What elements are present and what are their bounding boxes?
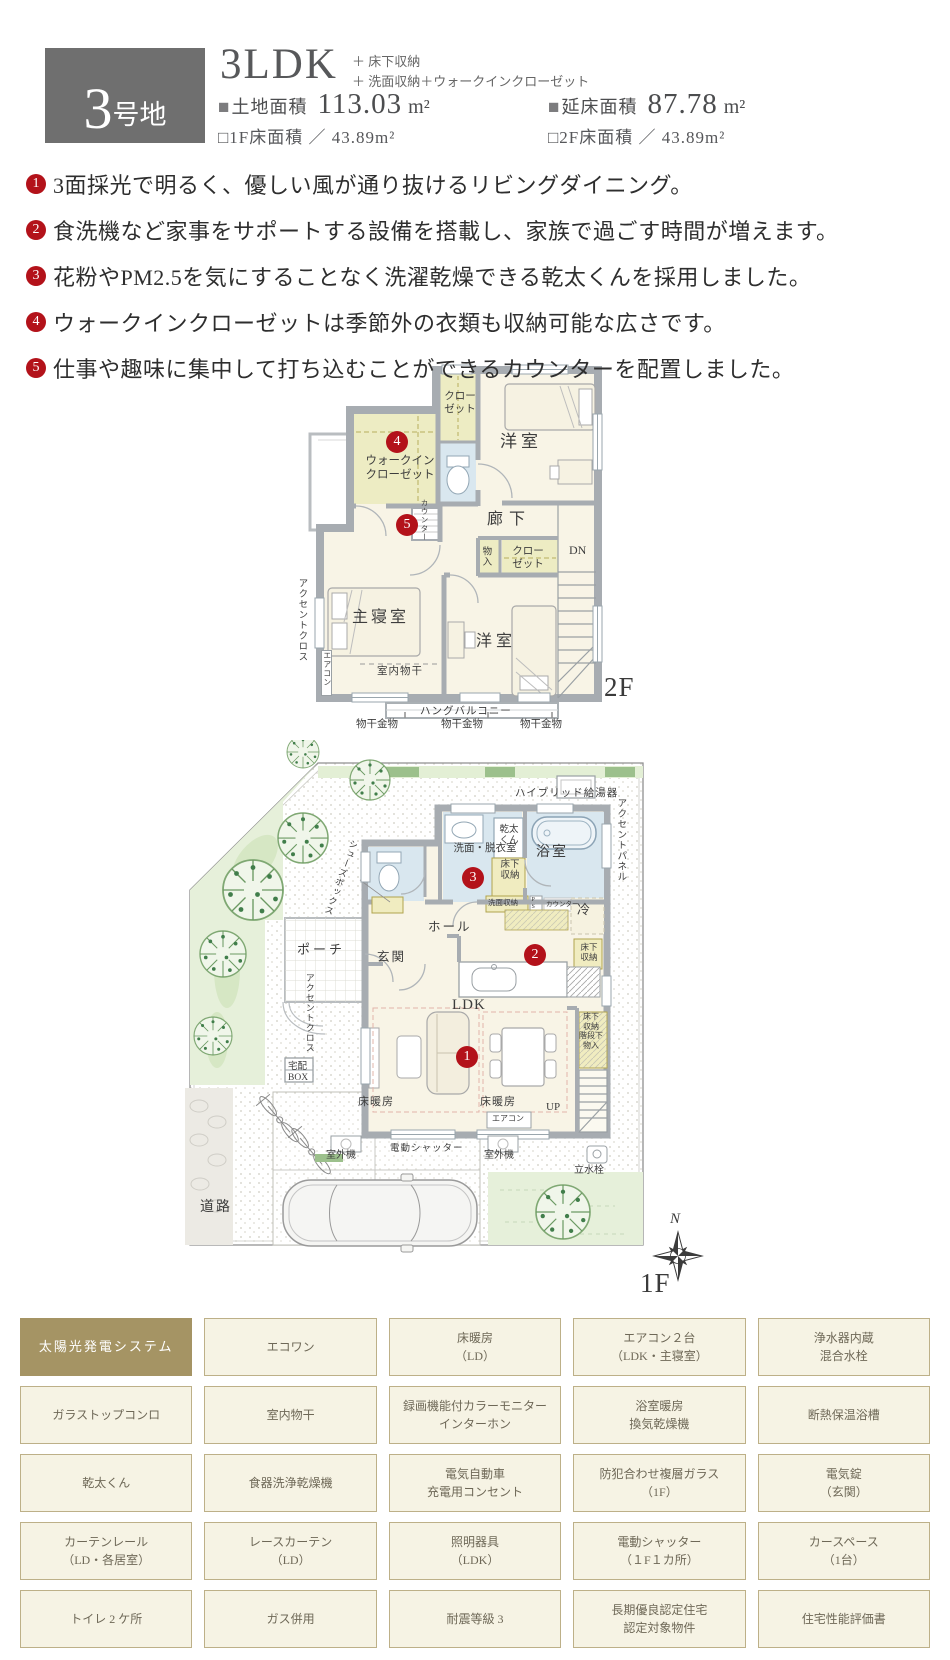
marker-4-wic: 4: [386, 431, 408, 453]
label-counter-2f: カウンター: [420, 499, 429, 545]
lot-suffix: 号地: [113, 101, 167, 135]
toilet-fixture-2f: [447, 456, 469, 494]
label-road: 道路: [200, 1200, 232, 1217]
room-label-hall: ホール: [428, 920, 472, 935]
faucet-unit: [587, 1146, 607, 1163]
marker-3-laundry: 3: [462, 867, 484, 889]
note-3-badge: 3: [26, 266, 46, 286]
land-area-value: 113.03: [317, 88, 402, 121]
note-5-text: 仕事や趣味に集中して打ち込むことができるカウンターを配置しました。: [53, 352, 794, 384]
floor-tag-2f: 2F: [604, 672, 635, 703]
label-fridge: 冷: [577, 902, 590, 918]
note-1: 13面採光で明るく、優しい風が通り抜けるリビングダイニング。: [26, 168, 839, 200]
lot-number: 3: [84, 83, 113, 135]
label-outdoor-unit-2: 室外機: [484, 1150, 514, 1162]
label-ps: PS: [529, 897, 536, 917]
label-faucet: 立水栓: [574, 1165, 604, 1177]
kitchen-counter: [459, 962, 567, 997]
room-label-master-bedroom: 主寝室: [352, 608, 409, 627]
toilet-fixture-1f: [377, 852, 401, 891]
label-floor-storage-2: 床下 収納: [576, 942, 602, 962]
room-label-wic: ウォークイン クローゼット: [355, 455, 445, 483]
label-shutter: 電動シャッター: [390, 1144, 464, 1155]
note-1-text: 3面採光で明るく、優しい風が通り抜けるリビングダイニング。: [53, 168, 693, 200]
equipment-cell: 電気自動車 充電用コンセント: [389, 1454, 561, 1512]
label-indoor-drying: 室内物干: [377, 666, 423, 679]
total-area-unit: m²: [724, 96, 746, 119]
note-2-text: 食洗機など家事をサポートする設備を搭載し、家族で過ごす時間が増えます。: [53, 214, 839, 246]
lot-number-badge: 3号地: [45, 48, 205, 143]
equipment-cell: 床暖房 （LD）: [389, 1318, 561, 1376]
note-4-text: ウォークインクローゼットは季節外の衣類も収納可能な広さです。: [53, 306, 726, 338]
equipment-cell: ガラストップコンロ: [20, 1386, 192, 1444]
label-delivery-box: 宅配 BOX: [288, 1062, 308, 1085]
room-label-washroom: 洗面・脱衣室: [443, 843, 527, 856]
note-3-text: 花粉やPM2.5を気にすることなく洗濯乾燥できる乾太くんを採用しました。: [53, 260, 811, 292]
equipment-cell: 照明器具 （LDK）: [389, 1522, 561, 1580]
bed-bedroom-bottom: [512, 606, 556, 696]
floor1-area: □1F床面積 ／ 43.89m²: [218, 123, 395, 148]
equipment-cell: 室内物干: [204, 1386, 376, 1444]
note-1-badge: 1: [26, 174, 46, 194]
washbasin: [445, 815, 483, 843]
room-label-entrance: 玄関: [377, 950, 406, 965]
room-label-closet-mid: クロー ゼット: [505, 546, 551, 571]
floor-tag-1f: 1F: [640, 1268, 671, 1299]
tree: [287, 740, 319, 768]
label-floor-heating-2: 床暖房: [480, 1096, 516, 1109]
room-label-ldk: LDK: [452, 996, 486, 1014]
label-hybrid-heater: ハイブリッド給湯器: [515, 788, 618, 801]
note-3: 3花粉やPM2.5を気にすることなく洗濯乾燥できる乾太くんを採用しました。: [26, 260, 839, 292]
total-area-value: 87.78: [647, 88, 717, 121]
label-outdoor-unit-1: 室外機: [326, 1150, 356, 1162]
equipment-cell: 浴室暖房 換気乾燥機: [573, 1386, 745, 1444]
tree: [200, 931, 246, 977]
property-sheet: 3号地 3LDK ＋ 床下収納 ＋ 洗面収納＋ウォークインクローゼット ■ 土地…: [0, 0, 950, 1660]
equipment-cell: 乾太くん: [20, 1454, 192, 1512]
label-wash-storage: 洗面収納: [488, 898, 518, 907]
plan-type-title: 3LDK: [220, 40, 338, 89]
equipment-cell: カーテンレール （LD・各居室）: [20, 1522, 192, 1580]
equipment-cell: 防犯合わせ複層ガラス （1F）: [573, 1454, 745, 1512]
room-label-storage: 物入: [479, 546, 490, 578]
marker-5-counter: 5: [396, 514, 418, 536]
label-floor-heating-1: 床暖房: [358, 1096, 394, 1109]
feature-notes: 13面採光で明るく、優しい風が通り抜けるリビングダイニング。 2食洗機など家事を…: [26, 168, 839, 398]
stairs-1f: [579, 1070, 607, 1132]
equipment-grid: 太陽光発電システム エコワン 床暖房 （LD） エアコン２台 （LDK・主寝室）…: [20, 1318, 930, 1648]
label-stairs-up: UP: [546, 1101, 560, 1114]
tree: [194, 1017, 232, 1055]
room-label-bedroom-top-2f: 洋室: [500, 432, 542, 452]
note-5: 5仕事や趣味に集中して打ち込むことができるカウンターを配置しました。: [26, 352, 839, 384]
floor2-area: □2F床面積 ／ 43.89m²: [548, 123, 725, 148]
equipment-cell: 録画機能付カラーモニター インターホン: [389, 1386, 561, 1444]
equipment-cell: カースペース （1台）: [758, 1522, 930, 1580]
plan-extra-features: ＋ 床下収納 ＋ 洗面収納＋ウォークインクローゼット: [352, 52, 589, 91]
label-hang-balcony: ハングバルコニー: [420, 706, 512, 719]
label-floor-storage-1: 床下 収納: [494, 860, 526, 883]
label-drying-hardware-3: 物干金物: [520, 719, 562, 732]
marker-2-kitchen: 2: [524, 944, 546, 966]
room-label-porch: ポーチ: [297, 942, 345, 958]
stove: [567, 967, 600, 997]
label-stairs-down: DN: [569, 543, 586, 557]
note-5-badge: 5: [26, 358, 46, 378]
room-label-closet-top: クロー ゼット: [437, 391, 483, 416]
total-floor-area: ■ 延床面積 87.78 m²: [548, 88, 745, 121]
land-area-bullet: ■: [218, 97, 229, 119]
equipment-cell: 浄水器内蔵 混合水栓: [758, 1318, 930, 1376]
total-area-label: 延床面積: [561, 93, 637, 119]
tree: [536, 1185, 590, 1239]
equipment-cell: 食器洗浄乾燥機: [204, 1454, 376, 1512]
equipment-cell: ガス併用: [204, 1590, 376, 1648]
note-2-badge: 2: [26, 220, 46, 240]
room-label-bathroom: 浴室: [536, 845, 568, 862]
equipment-cell: 電動シャッター （１F１カ所）: [573, 1522, 745, 1580]
equipment-cell: エアコン２台 （LDK・主寝室）: [573, 1318, 745, 1376]
room-label-hallway: 廊下: [487, 510, 531, 529]
car: [283, 1174, 477, 1252]
shoe-box: [372, 897, 403, 913]
marker-1-living: 1: [456, 1046, 478, 1068]
label-drying-hardware-1: 物干金物: [356, 719, 398, 732]
note-2: 2食洗機など家事をサポートする設備を搭載し、家族で過ごす時間が増えます。: [26, 214, 839, 246]
label-aircon-1f: エアコン: [492, 1114, 524, 1124]
label-counter-1f: カウンター: [546, 901, 579, 909]
equipment-cell: レースカーテン （LD）: [204, 1522, 376, 1580]
equipment-cell: 断熱保温浴槽: [758, 1386, 930, 1444]
equipment-cell: 長期優良認定住宅 認定対象物件: [573, 1590, 745, 1648]
label-under-stairs: 床下 収納 階段下 物入: [576, 1012, 606, 1050]
label-accent-cloth-2f: アクセントクロス: [295, 578, 306, 678]
note-4-badge: 4: [26, 312, 46, 332]
note-4: 4ウォークインクローゼットは季節外の衣類も収納可能な広さです。: [26, 306, 839, 338]
label-aircon-2f: エアコン: [321, 650, 332, 696]
equipment-cell: 電気錠 （玄関）: [758, 1454, 930, 1512]
label-accent-panel: アクセントパネル: [614, 798, 625, 898]
label-drying-hardware-2: 物干金物: [441, 719, 483, 732]
coffee-table: [397, 1036, 421, 1078]
total-area-bullet: ■: [548, 97, 559, 119]
tree: [350, 760, 390, 800]
compass-north-label: N: [670, 1210, 680, 1228]
equipment-cell: 住宅性能評価書: [758, 1590, 930, 1648]
counter-hatched-strip: [505, 910, 568, 930]
label-accent-cloth-1f: アクセントクロス: [304, 973, 315, 1073]
equipment-cell: 耐震等級 3: [389, 1590, 561, 1648]
land-area-unit: m²: [408, 96, 430, 119]
tree: [278, 813, 328, 863]
stone-paving: [185, 1088, 233, 1245]
land-area: ■ 土地面積 113.03 m²: [218, 88, 430, 121]
room-label-bedroom-bottom-2f: 洋室: [476, 632, 516, 651]
equipment-cell-solar: 太陽光発電システム: [20, 1318, 192, 1376]
land-area-label: 土地面積: [231, 93, 307, 119]
tree: [223, 860, 283, 920]
equipment-cell: トイレ 2 ケ所: [20, 1590, 192, 1648]
equipment-cell: エコワン: [204, 1318, 376, 1376]
